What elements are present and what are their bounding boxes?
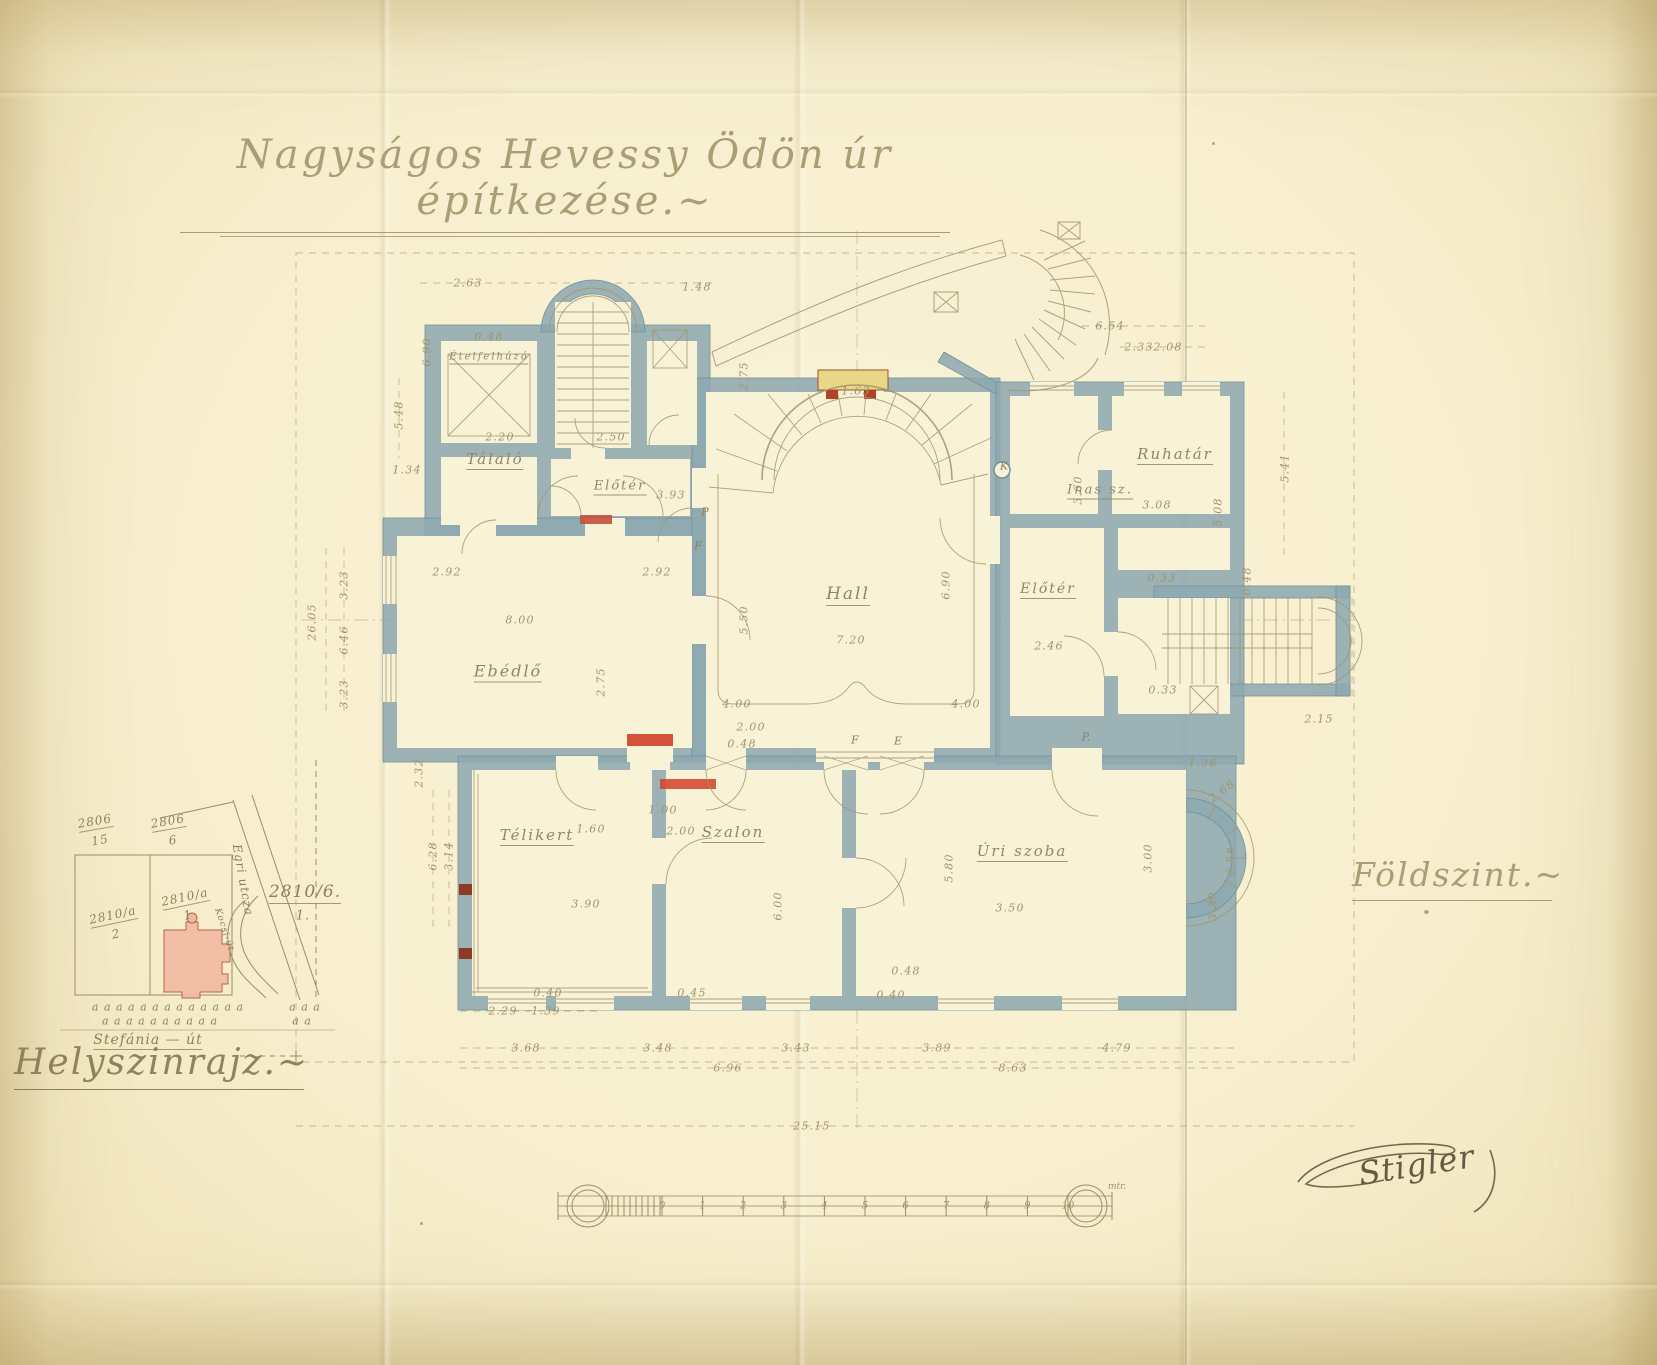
- floor-level-label: Földszint.~: [1352, 855, 1552, 901]
- drawing-sheet: Nagyságos Hevessy Ödön úr építkezése.~ É…: [0, 0, 1657, 1365]
- scale-bar: [558, 1185, 1112, 1227]
- scale-unit-label: mtr.: [1108, 1182, 1126, 1192]
- terrace-staircase: [712, 222, 1110, 391]
- site-plan: [60, 760, 335, 1062]
- siteplan-title: Helyszinrajz.~: [14, 1042, 304, 1090]
- drawing-title: Nagyságos Hevessy Ödön úr építkezése.~: [180, 132, 950, 233]
